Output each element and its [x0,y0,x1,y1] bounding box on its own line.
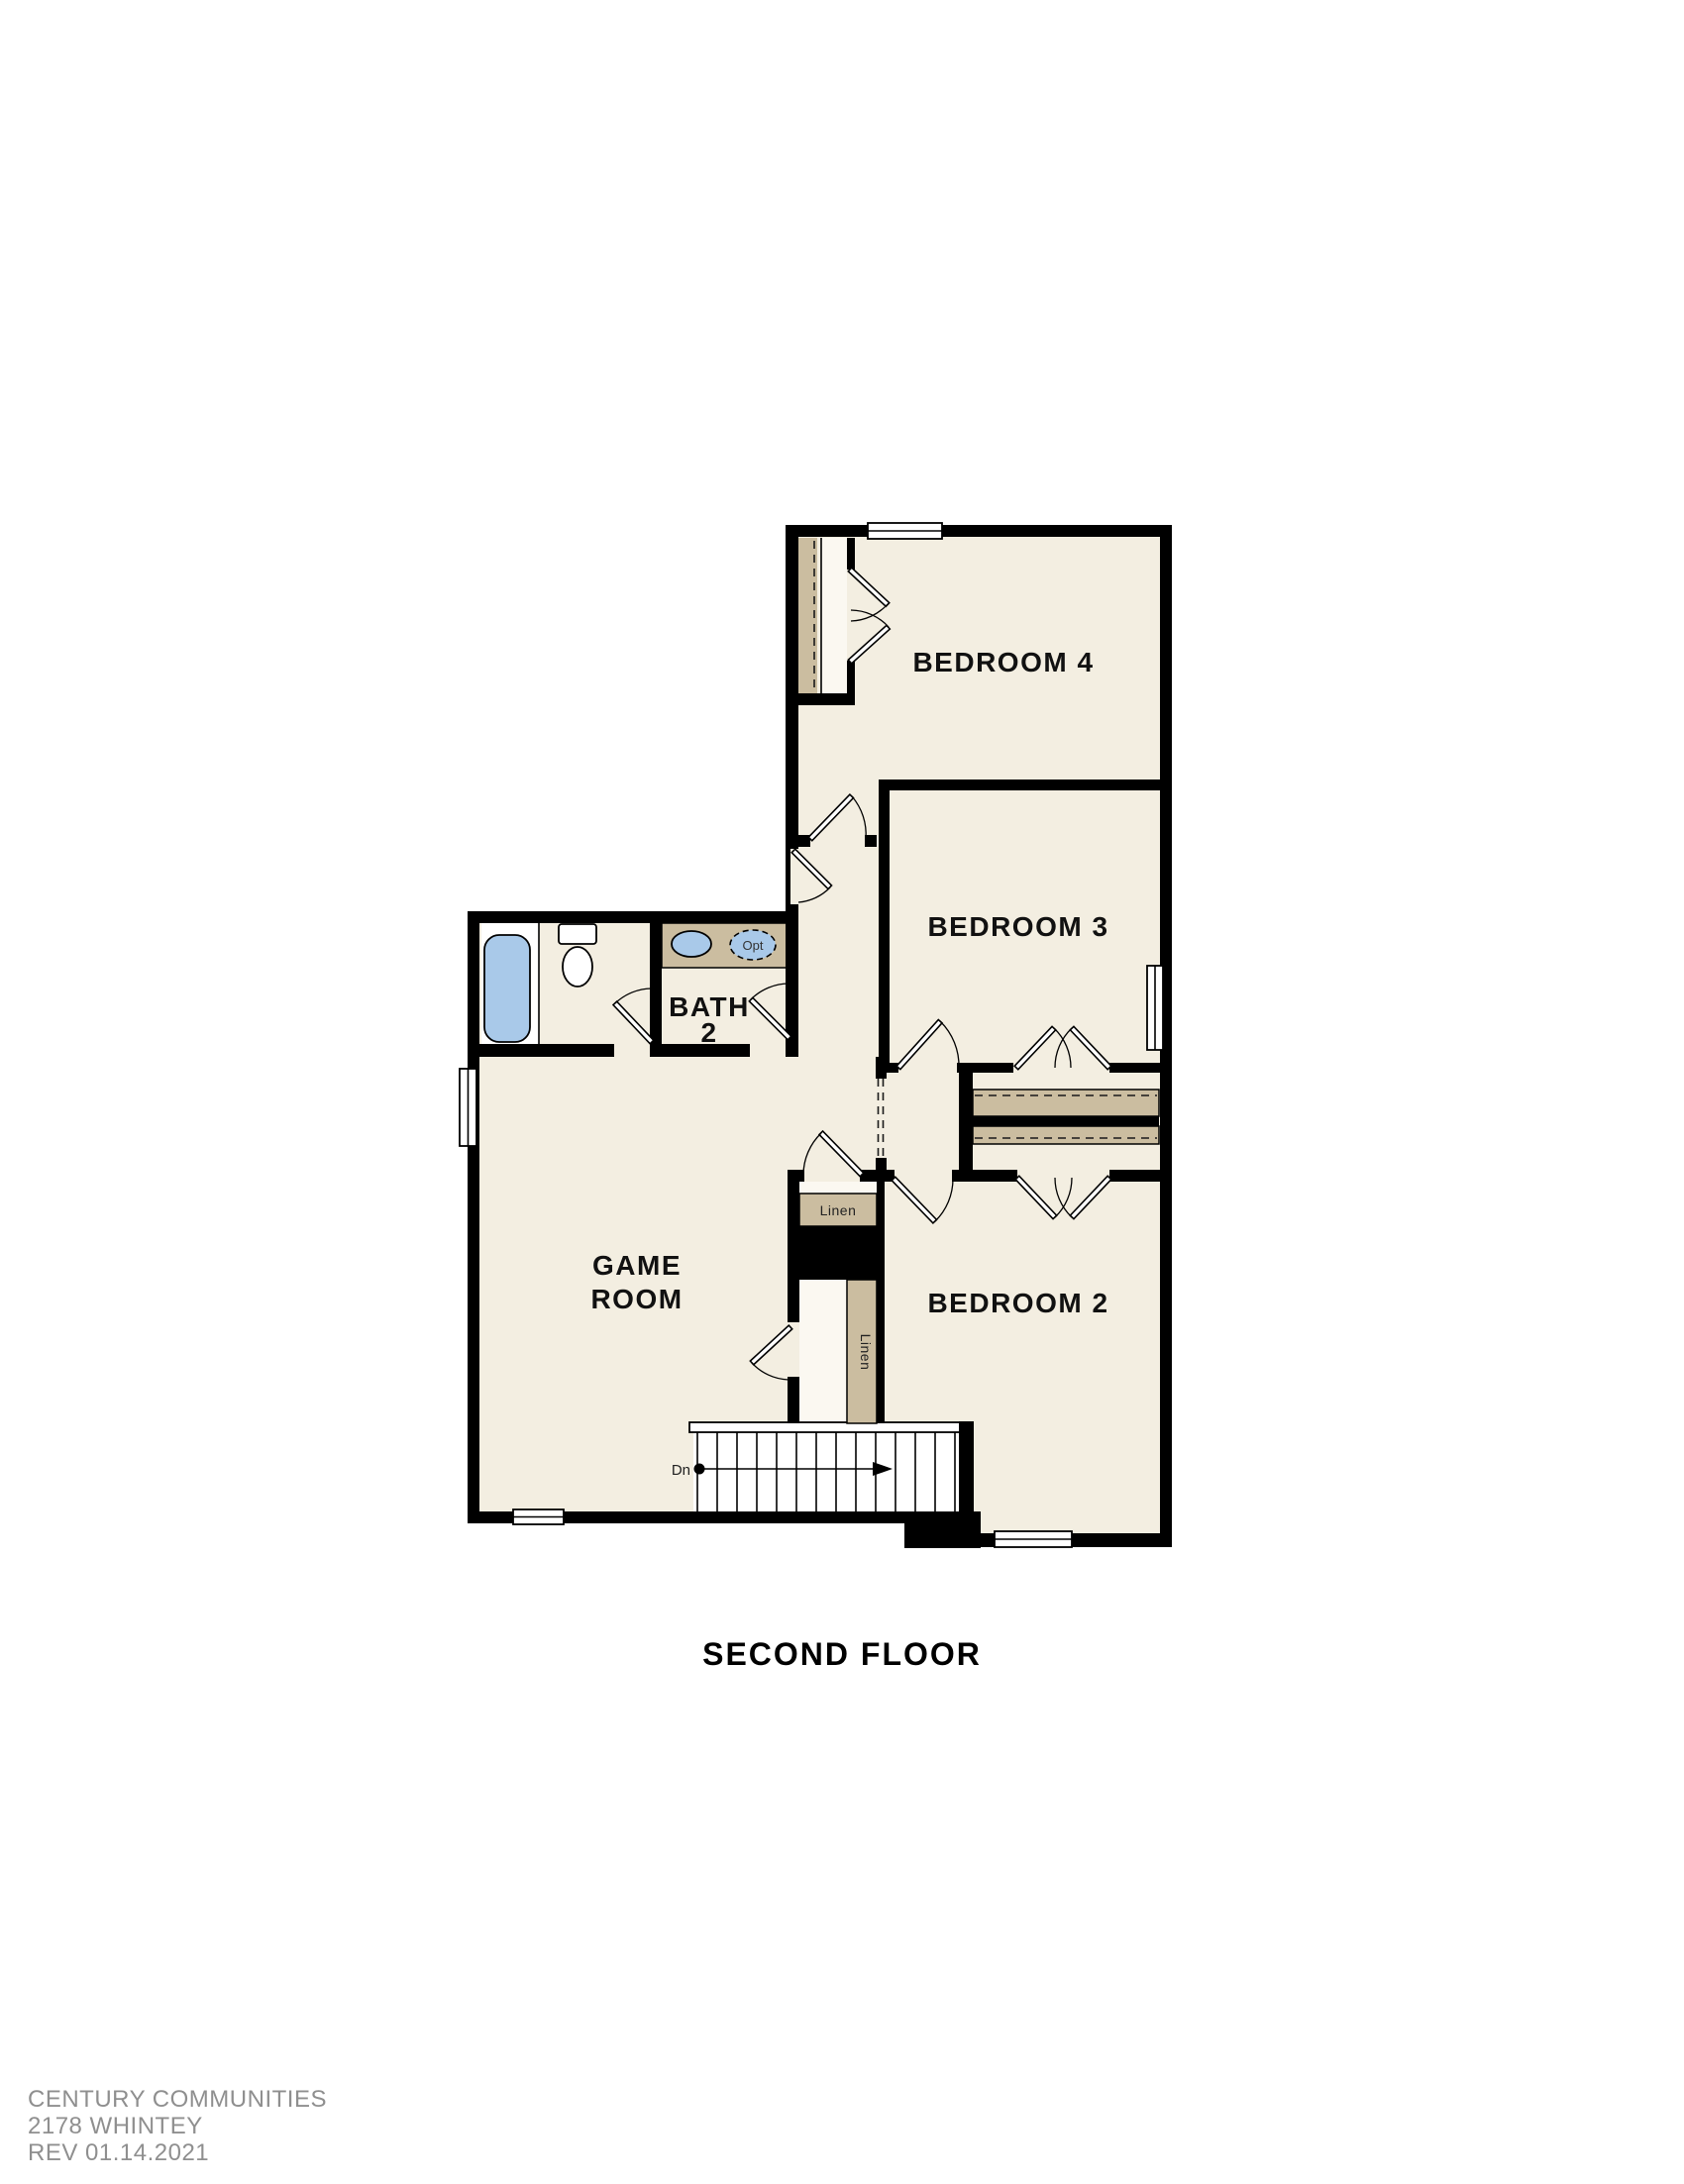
bedroom4-hall-wall-right [865,835,877,847]
closet-right-wall-lower [847,661,855,705]
chase-block [792,1226,885,1280]
toilet-room-wall [650,923,662,1057]
bedroom4-closet-floor [821,538,847,693]
stair-treads-area [693,1432,959,1511]
bedroom3-label: BEDROOM 3 [927,911,1108,942]
gameroom-left-window [460,1069,476,1146]
toilet [559,924,596,987]
stair-right-wall [959,1421,974,1527]
sheet-title: SECOND FLOOR [0,1636,1684,1673]
linen-upper-floor [799,1182,877,1194]
bedroom2-top-wall-c [952,1170,1017,1182]
bedroom3-bedroom4-divider [879,780,1172,790]
gameroom-bottom-window [513,1509,564,1524]
bedroom2-label: BEDROOM 2 [927,1288,1108,1318]
sink [672,931,711,957]
bedroom2-top-wall-d [1109,1170,1160,1182]
stair-rail [689,1422,960,1432]
bedroom2-bottom-window [995,1531,1072,1547]
linen-stairs-label: Linen [858,1334,874,1371]
exterior-wall-top [786,525,1172,537]
closets-left-wall [959,1063,973,1181]
bedroom4-label: BEDROOM 4 [912,647,1094,677]
gameroom-label-line2: ROOM [590,1284,683,1314]
bedroom3-closet-shelf [973,1090,1159,1116]
exterior-wall-bath-top [468,911,797,923]
bath-bottom-wall-a [468,1044,614,1057]
floor-plan-drawing: Dn [0,0,1684,2179]
linen-left-wall-lower [788,1377,799,1423]
hall-post-upper [876,1057,887,1079]
plan-number: 2178 WHINTEY [28,2113,327,2139]
bedroom4-window [868,523,942,539]
closet-bottom-wall [786,693,855,705]
arrow-start-dot [694,1464,705,1475]
staircase: Dn [672,1422,960,1511]
gameroom-label-line1: GAME [592,1250,682,1281]
floor-plan-sheet: Dn [0,0,1684,2179]
bedroom2-top-wall-b [860,1170,895,1182]
bedroom3-left-wall [879,780,890,1073]
bathtub [484,935,530,1042]
stairs-dn-label: Dn [672,1462,690,1479]
closet-right-wall-upper [847,538,855,570]
optional-sink-label: Opt [743,938,764,953]
closets-middle-wall [973,1116,1159,1126]
bedroom3-window [1147,966,1163,1050]
hall-post-lower [876,1158,887,1171]
exterior-mask [468,1523,904,1569]
title-block: CENTURY COMMUNITIES 2178 WHINTEY REV 01.… [28,2086,327,2166]
exterior-wall-left [468,911,479,1523]
exterior-wall-upper-left [786,525,798,1057]
bedroom2-top-wall-a [788,1170,804,1182]
linen-hall-label: Linen [820,1202,857,1218]
linen-right-wall [877,1182,885,1423]
revision-date: REV 01.14.2021 [28,2139,327,2166]
builder-name: CENTURY COMMUNITIES [28,2086,327,2113]
bath-label-line2: 2 [700,1017,717,1048]
optional-sink: Opt [730,930,776,960]
bedroom2-closet-shelf [973,1126,1159,1144]
bedroom3-bottom-wall-c [1109,1063,1160,1073]
linen-lower-floor [799,1280,847,1423]
